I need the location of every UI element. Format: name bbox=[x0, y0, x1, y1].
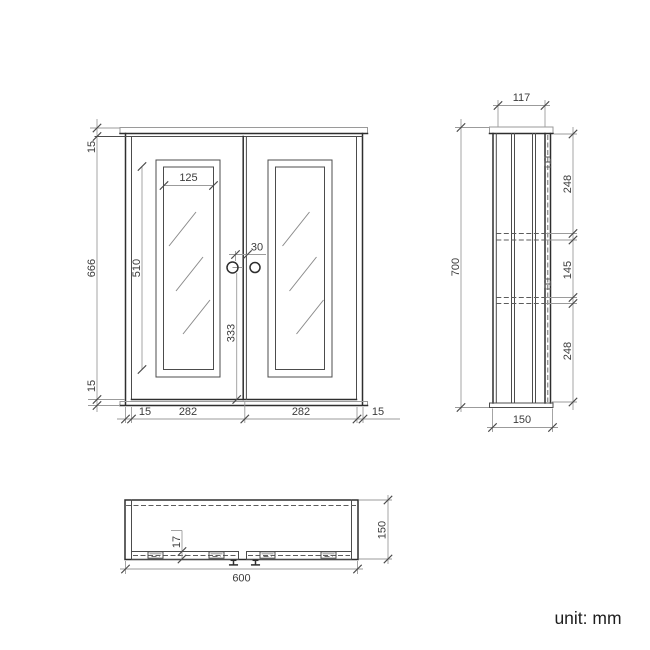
dim-side-top-depth: 117 bbox=[513, 92, 531, 104]
dim-side-top-section: 248 bbox=[562, 175, 574, 193]
dim-knob-to-bottom: 333 bbox=[226, 324, 238, 342]
dim-front-bottom-thickness: 15 bbox=[86, 380, 98, 392]
dim-knob-gap: 30 bbox=[251, 242, 263, 254]
dim-front-door-height: 666 bbox=[86, 259, 98, 277]
dim-plan-door-thickness: 17 bbox=[171, 536, 183, 548]
dim-side-middle-section: 145 bbox=[562, 261, 574, 279]
dim-side-bottom-section: 248 bbox=[562, 342, 574, 360]
dim-front-left-side: 15 bbox=[139, 406, 151, 418]
dim-plan-total-width: 600 bbox=[232, 573, 250, 585]
drawing-canvas: 15 666 15 15 282 282 15 125 bbox=[0, 0, 650, 650]
dim-side-total-height: 700 bbox=[450, 258, 462, 276]
cabinet-technical-drawing: 15 666 15 15 282 282 15 125 bbox=[0, 0, 650, 650]
unit-note: unit: mm bbox=[554, 608, 621, 628]
dim-side-bottom-depth: 150 bbox=[513, 414, 531, 426]
dim-front-top-thickness: 15 bbox=[86, 141, 98, 153]
dim-plan-total-depth: 150 bbox=[377, 521, 389, 539]
dim-glass-width: 125 bbox=[179, 172, 197, 184]
dim-glass-height: 510 bbox=[131, 259, 143, 277]
dim-front-right-door-width: 282 bbox=[292, 406, 310, 418]
dim-front-right-side: 15 bbox=[372, 406, 384, 418]
dim-front-left-door-width: 282 bbox=[179, 406, 197, 418]
